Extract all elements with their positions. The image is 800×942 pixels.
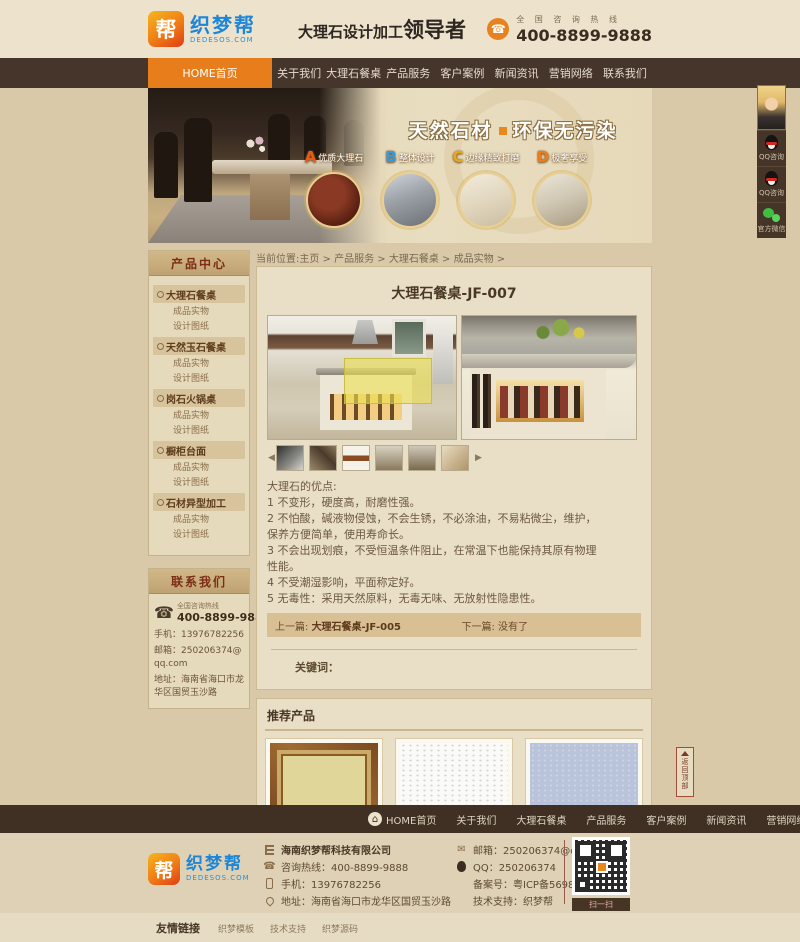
- envelope-icon: ✉: [455, 844, 468, 855]
- nav-item-network[interactable]: 营销网络: [544, 58, 598, 88]
- qr-caption: 扫一扫: [572, 898, 630, 911]
- footer-logo[interactable]: 帮 织梦帮 DEDESOS.COM: [148, 853, 250, 885]
- phone-icon: ☎: [263, 861, 276, 872]
- footer-mobile: 手机：13976782256: [281, 876, 381, 891]
- thumbnail-1[interactable]: [276, 445, 304, 471]
- mobile-icon: [263, 878, 276, 889]
- qq-icon: [765, 135, 778, 150]
- nav-item-cases[interactable]: 客户案例: [435, 58, 489, 88]
- fnav-item-about[interactable]: 关于我们: [446, 812, 506, 827]
- site-slogan: 大理石设计加工领导者: [298, 14, 466, 44]
- sidebar-sub-item[interactable]: 成品实物: [153, 303, 245, 318]
- phone-icon: ☎: [487, 18, 509, 40]
- qr-code-image: [572, 837, 630, 895]
- feature-circle-luxury: [534, 172, 590, 228]
- contact-box: 联系我们 ☎ 全国咨询热线 400-8899-9888 手机：139767822…: [148, 568, 250, 709]
- product-image-viewer: [267, 315, 641, 440]
- nav-item-news[interactable]: 新闻资讯: [490, 58, 544, 88]
- home-icon: ⌂: [368, 812, 382, 826]
- sidebar-sub-item[interactable]: 设计图纸: [153, 526, 245, 541]
- content-column: 当前位置:主页 > 产品服务 > 大理石餐桌 > 成品实物 > 大理石餐桌-JF…: [256, 250, 652, 859]
- product-zoom-preview: [461, 315, 637, 440]
- banner-feature-a: A优质大理石: [298, 148, 370, 228]
- product-center-box: 产品中心 大理石餐桌 成品实物 设计图纸 天然玉石餐桌 成品实物 设计图纸 岗石…: [148, 250, 250, 556]
- qq-consult-button-2[interactable]: QQ咨询: [757, 166, 786, 202]
- main-nav: HOME首页 关于我们 大理石餐桌 产品服务 客户案例 新闻资讯 营销网络 联系…: [0, 58, 800, 88]
- telephone-icon: ☎: [154, 603, 174, 622]
- fnav-item-tables[interactable]: 大理石餐桌: [506, 812, 576, 827]
- nav-item-tables[interactable]: 大理石餐桌: [326, 58, 381, 88]
- feature-circle-edge: [458, 172, 514, 228]
- header-hotline: ☎ 全 国 咨 询 热 线 400-8899-9888: [487, 14, 652, 45]
- thumb-prev-arrow[interactable]: ◀: [267, 453, 276, 463]
- footer-nav: ⌂HOME首页 关于我们 大理石餐桌 产品服务 客户案例 新闻资讯 营销网络 联…: [0, 805, 800, 833]
- contact-box-title: 联系我们: [149, 569, 249, 594]
- footer-company: 海南织梦帮科技有限公司: [281, 842, 391, 857]
- footer-qq: QQ：250206374: [473, 859, 556, 874]
- friend-link-2[interactable]: 技术支持: [270, 922, 306, 935]
- fnav-item-network[interactable]: 营销网络: [756, 812, 800, 827]
- logo-name: 织梦帮: [190, 15, 256, 35]
- footer-contact-col1: 海南织梦帮科技有限公司 ☎咨询热线：400-8899-9888 手机：13976…: [263, 841, 453, 909]
- friend-links-title: 友情链接: [156, 920, 200, 936]
- contact-email: 邮箱：250206374@qq.com: [154, 645, 244, 671]
- sidebar-sub-item[interactable]: 成品实物: [153, 407, 245, 422]
- sidebar-category-countertop: 橱柜台面 成品实物 设计图纸: [153, 441, 245, 489]
- banner-title: 天然石材环保无污染: [380, 116, 646, 143]
- sidebar-category-marble-table: 大理石餐桌 成品实物 设计图纸: [153, 285, 245, 333]
- qq-consult-button-1[interactable]: QQ咨询: [757, 130, 786, 166]
- logo-badge-icon: 帮: [148, 853, 180, 885]
- fnav-item-news[interactable]: 新闻资讯: [696, 812, 756, 827]
- nav-item-about[interactable]: 关于我们: [272, 58, 326, 88]
- footer-hotline: 咨询热线：400-8899-9888: [281, 859, 408, 874]
- logo-domain: DEDESOS.COM: [190, 37, 256, 44]
- friend-link-3[interactable]: 织梦源码: [322, 922, 358, 935]
- logo-badge-icon: 帮: [148, 11, 184, 47]
- fnav-item-services[interactable]: 产品服务: [576, 812, 636, 827]
- hotline-label: 全 国 咨 询 热 线: [516, 14, 652, 25]
- banner-feature-c: C边缘精致打磨: [450, 148, 522, 228]
- thumbnail-5[interactable]: [408, 445, 436, 471]
- prev-article-link[interactable]: 上一篇: 大理石餐桌-JF-005: [267, 618, 461, 633]
- thumbnail-strip: ◀ ▶: [267, 445, 641, 471]
- feature-circle-design: [382, 172, 438, 228]
- footer-divider: [564, 840, 565, 904]
- back-to-top-button[interactable]: 返回顶部: [676, 747, 694, 797]
- qq-icon: [765, 171, 778, 186]
- fnav-item-home[interactable]: ⌂HOME首页: [358, 812, 446, 827]
- nav-item-services[interactable]: 产品服务: [381, 58, 435, 88]
- footer-address: 地址：海南省海口市龙华区国贸玉沙路: [281, 893, 451, 908]
- sidebar-sub-item[interactable]: 成品实物: [153, 355, 245, 370]
- sidebar-sub-item[interactable]: 设计图纸: [153, 318, 245, 333]
- sidebar-sub-item[interactable]: 设计图纸: [153, 422, 245, 437]
- up-arrow-icon: [681, 751, 689, 756]
- footer-contact-col2: ✉邮箱：250206374@qq.com QQ：250206374 备案号：粤I…: [455, 841, 590, 909]
- fnav-item-cases[interactable]: 客户案例: [636, 812, 696, 827]
- qq-icon: [455, 861, 468, 872]
- page-title: 大理石餐桌-JF-007: [267, 283, 641, 303]
- sidebar: 产品中心 大理石餐桌 成品实物 设计图纸 天然玉石餐桌 成品实物 设计图纸 岗石…: [148, 250, 250, 859]
- header: 帮 织梦帮 DEDESOS.COM 大理石设计加工领导者 ☎ 全 国 咨 询 热…: [0, 0, 800, 58]
- hotline-number: 400-8899-9888: [516, 26, 652, 45]
- keywords-label: 关键词：: [267, 650, 641, 683]
- thumbnail-3[interactable]: [342, 445, 370, 471]
- product-center-title: 产品中心: [149, 251, 249, 276]
- wechat-icon: [763, 208, 780, 222]
- sidebar-sub-item[interactable]: 成品实物: [153, 459, 245, 474]
- site-logo[interactable]: 帮 织梦帮 DEDESOS.COM: [148, 11, 256, 47]
- footer: 帮 织梦帮 DEDESOS.COM 海南织梦帮科技有限公司 ☎咨询热线：400-…: [0, 833, 800, 913]
- friend-links-bar: 友情链接 织梦模板 技术支持 织梦源码: [0, 913, 800, 942]
- product-description: 大理石的优点: 1 不变形，硬度高，耐磨性强。 2 不怕酸，碱液物侵蚀，不会生锈…: [267, 479, 641, 607]
- sidebar-sub-item[interactable]: 成品实物: [153, 511, 245, 526]
- contact-mobile: 手机：13976782256: [154, 629, 244, 642]
- sidebar-category-jade-table: 天然玉石餐桌 成品实物 设计图纸: [153, 337, 245, 385]
- next-article-label: 下一篇: 没有了: [461, 618, 528, 633]
- building-icon: [263, 845, 276, 855]
- banner-title-separator: [499, 127, 507, 135]
- sidebar-category-special-processing: 石材异型加工 成品实物 设计图纸: [153, 493, 245, 541]
- thumbnail-6[interactable]: [441, 445, 469, 471]
- sidebar-category-hotpot-table: 岗石火锅桌 成品实物 设计图纸: [153, 389, 245, 437]
- banner-features: A优质大理石 B整体设计 C边缘精致打磨 D极奢享受: [298, 148, 598, 228]
- thumbnail-4[interactable]: [375, 445, 403, 471]
- floating-contact-bar: QQ咨询 QQ咨询 官方微信: [757, 85, 786, 238]
- feature-circle-marble: [306, 172, 362, 228]
- thumbnail-2[interactable]: [309, 445, 337, 471]
- main-area: 产品中心 大理石餐桌 成品实物 设计图纸 天然玉石餐桌 成品实物 设计图纸 岗石…: [148, 243, 652, 859]
- contact-address: 地址：海南省海口市龙华区国贸玉沙路: [154, 674, 244, 700]
- product-main-image[interactable]: [267, 315, 457, 440]
- prev-next-bar: 上一篇: 大理石餐桌-JF-005 下一篇: 没有了: [267, 613, 641, 637]
- breadcrumb[interactable]: 当前位置:主页 > 产品服务 > 大理石餐桌 > 成品实物 >: [256, 250, 652, 266]
- product-detail-box: 大理石餐桌-JF-007 ◀: [256, 266, 652, 690]
- wechat-button[interactable]: 官方微信: [757, 202, 786, 238]
- footer-support: 技术支持：织梦帮: [473, 893, 553, 908]
- sidebar-sub-item[interactable]: 设计图纸: [153, 370, 245, 385]
- location-pin-icon: [263, 897, 276, 905]
- sidebar-sub-item[interactable]: 设计图纸: [153, 474, 245, 489]
- qr-code-block: 扫一扫: [572, 837, 630, 911]
- banner-feature-b: B整体设计: [374, 148, 446, 228]
- hero-banner: 天然石材环保无污染 A优质大理石 B整体设计 C边缘精致打磨 D极奢享受: [148, 88, 652, 243]
- friend-link-1[interactable]: 织梦模板: [218, 922, 254, 935]
- nav-item-home[interactable]: HOME首页: [148, 58, 272, 88]
- thumb-next-arrow[interactable]: ▶: [474, 453, 483, 463]
- banner-feature-d: D极奢享受: [526, 148, 598, 228]
- service-avatar[interactable]: [757, 85, 786, 130]
- recommend-title: 推荐产品: [265, 705, 643, 731]
- nav-item-contact[interactable]: 联系我们: [598, 58, 652, 88]
- zoom-lens[interactable]: [344, 358, 432, 404]
